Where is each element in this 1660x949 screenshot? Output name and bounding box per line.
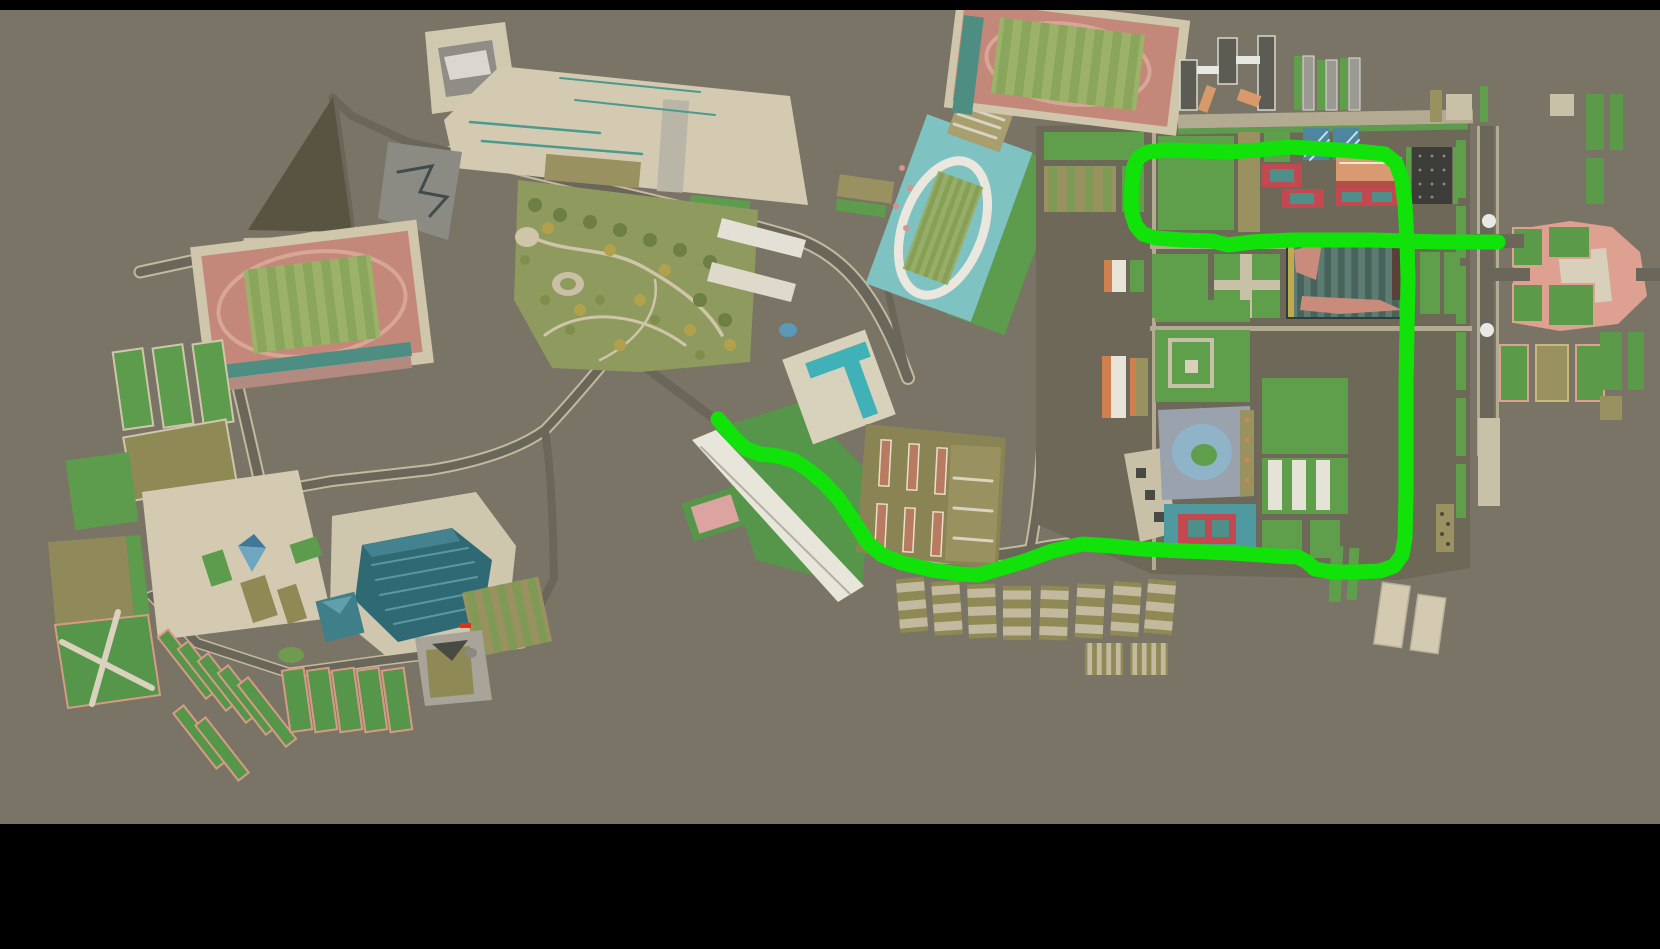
parked-cars bbox=[1440, 512, 1444, 516]
sidewalk bbox=[1496, 126, 1499, 456]
lawn-strip bbox=[1294, 56, 1302, 110]
plot-group bbox=[1087, 643, 1092, 675]
lawn-strip bbox=[1130, 260, 1144, 292]
park-trees bbox=[540, 295, 550, 305]
plot-green bbox=[1500, 345, 1528, 401]
court-teal bbox=[1188, 520, 1205, 537]
dorm-link bbox=[1197, 66, 1219, 74]
park-trees bbox=[604, 244, 616, 256]
building-white-slab bbox=[1268, 460, 1282, 510]
building-orange-edge bbox=[1336, 181, 1402, 187]
greenhouse bbox=[931, 512, 943, 556]
lawn-square bbox=[65, 452, 138, 530]
dorm-building bbox=[1258, 36, 1275, 110]
sidewalk bbox=[1477, 126, 1480, 456]
building-khaki bbox=[1430, 90, 1442, 122]
plot-green bbox=[1576, 345, 1604, 401]
lawn-strip bbox=[1586, 158, 1604, 204]
campus-map-canvas[interactable] bbox=[0, 0, 1660, 949]
lawn-strip bbox=[1456, 398, 1466, 456]
lawn-strip bbox=[1480, 86, 1488, 122]
lawn-strip bbox=[1456, 266, 1466, 324]
road-into-fan bbox=[1494, 268, 1530, 281]
park-trees bbox=[542, 222, 554, 234]
roundabout bbox=[1482, 214, 1496, 228]
letterbox-bottom bbox=[0, 824, 1660, 949]
plot-column bbox=[1003, 609, 1031, 618]
park-trees bbox=[574, 304, 586, 316]
plot-column bbox=[968, 624, 996, 634]
path-band-khaki bbox=[1240, 410, 1254, 496]
letterbox-top bbox=[0, 0, 1660, 10]
park-trees bbox=[718, 313, 732, 327]
plot-column bbox=[1076, 606, 1104, 616]
parking-dots bbox=[1443, 183, 1446, 186]
sports-markers bbox=[893, 203, 899, 209]
lawn bbox=[1262, 378, 1348, 454]
park-trees bbox=[684, 324, 696, 336]
tree-dots bbox=[1245, 458, 1250, 463]
greenhouse bbox=[879, 440, 891, 486]
plot-column bbox=[967, 588, 995, 598]
parked-cars bbox=[1446, 522, 1450, 526]
plot-column bbox=[1003, 591, 1031, 600]
parking-dots bbox=[1419, 169, 1422, 172]
plot-column bbox=[968, 606, 996, 616]
building-beige bbox=[1446, 94, 1472, 120]
plot-group bbox=[1097, 643, 1102, 675]
dorm-building-light bbox=[1326, 60, 1337, 110]
tree-dots bbox=[1245, 438, 1250, 443]
road-into-fan bbox=[1636, 268, 1660, 281]
lawn bbox=[1044, 132, 1144, 160]
lawn-quad bbox=[1513, 284, 1543, 322]
building-beige bbox=[1550, 94, 1574, 116]
dorm-building-light bbox=[1349, 58, 1360, 110]
gatehouse bbox=[1136, 468, 1146, 478]
park-trees bbox=[634, 294, 646, 306]
park-trees bbox=[565, 325, 575, 335]
parked-cars bbox=[1440, 532, 1444, 536]
court-teal bbox=[1212, 520, 1229, 537]
court-teal bbox=[1270, 169, 1294, 182]
parking-dots bbox=[1419, 196, 1422, 199]
lawn-strip bbox=[1456, 140, 1466, 198]
dorm-link bbox=[1236, 56, 1260, 64]
park-trees bbox=[614, 339, 626, 351]
lawn-strip bbox=[1628, 332, 1644, 390]
pond-feature bbox=[779, 323, 797, 337]
sports-markers bbox=[907, 185, 913, 191]
park-trees bbox=[695, 350, 705, 360]
plot-column bbox=[1040, 608, 1068, 618]
lawn bbox=[1155, 300, 1250, 322]
dorm-building bbox=[1218, 38, 1237, 84]
roundabout-green bbox=[278, 647, 304, 663]
parking-dots bbox=[1419, 155, 1422, 158]
red-vehicle bbox=[460, 623, 471, 628]
lawn-strip bbox=[1456, 464, 1466, 518]
walk-column bbox=[1478, 418, 1500, 506]
parking-dots bbox=[1443, 169, 1446, 172]
gatehouse bbox=[1154, 512, 1164, 522]
allotments bbox=[1085, 166, 1094, 212]
parking-dots bbox=[1431, 196, 1434, 199]
parking-khaki bbox=[1436, 504, 1454, 552]
field-crossed bbox=[55, 615, 160, 708]
greenhouse bbox=[935, 448, 947, 494]
field-edge-yellow bbox=[1287, 238, 1294, 318]
allotments bbox=[1049, 166, 1058, 212]
park-trees bbox=[553, 208, 567, 222]
farm-building bbox=[945, 445, 1001, 563]
court-teal bbox=[1342, 192, 1362, 202]
park-trees bbox=[673, 243, 687, 257]
park-trees bbox=[650, 315, 660, 325]
dorm-building bbox=[1180, 60, 1197, 110]
park-trees bbox=[693, 293, 707, 307]
building-orange-stripe bbox=[1104, 260, 1112, 292]
roundabout bbox=[1480, 323, 1494, 337]
parked-cars bbox=[1446, 542, 1450, 546]
park-trees bbox=[613, 223, 627, 237]
lawn-strip bbox=[1317, 60, 1325, 110]
allotments bbox=[1067, 166, 1076, 212]
greenhouse bbox=[903, 508, 915, 552]
plot-column bbox=[1039, 626, 1067, 636]
greenhouse bbox=[907, 444, 919, 490]
building-white-slab bbox=[1292, 460, 1306, 510]
parking-dots bbox=[1443, 155, 1446, 158]
pond-island bbox=[1191, 444, 1217, 466]
lawn-strip bbox=[1456, 206, 1466, 258]
lawn-strip bbox=[1340, 58, 1348, 110]
building-white-slab bbox=[1316, 460, 1330, 510]
sports-markers bbox=[899, 165, 905, 171]
parking-dots bbox=[1431, 155, 1434, 158]
lawn-quad bbox=[1548, 226, 1590, 258]
plot-group bbox=[1116, 643, 1121, 675]
plot-group bbox=[1142, 643, 1147, 675]
plot-column bbox=[1077, 588, 1105, 598]
path-cross bbox=[1214, 280, 1280, 290]
field-khaki-large bbox=[48, 536, 134, 630]
plot-khaki bbox=[1600, 396, 1622, 420]
parking-dots bbox=[1419, 183, 1422, 186]
park-amphitheater-core bbox=[560, 278, 576, 290]
plot-group bbox=[1132, 643, 1137, 675]
lawn-strip bbox=[1610, 94, 1623, 150]
park-trees bbox=[520, 255, 530, 265]
park-trees bbox=[595, 295, 605, 305]
building-orange-stripe bbox=[1130, 358, 1136, 416]
plot-column bbox=[1075, 624, 1103, 634]
court-teal bbox=[1290, 193, 1314, 204]
tree-dots bbox=[1245, 418, 1250, 423]
dorm-building-light bbox=[1303, 56, 1314, 110]
small-building bbox=[1185, 360, 1198, 373]
plot-group bbox=[1161, 643, 1166, 675]
parking-dots bbox=[1431, 183, 1434, 186]
building-orange-stripe bbox=[1102, 356, 1111, 418]
allotments bbox=[1103, 166, 1112, 212]
plot-column bbox=[1003, 627, 1031, 636]
park-trees bbox=[724, 339, 736, 351]
park-trees bbox=[583, 215, 597, 229]
parking-dots bbox=[1431, 169, 1434, 172]
court-teal bbox=[1372, 192, 1392, 202]
lawn-strip bbox=[1456, 332, 1466, 390]
plot-group bbox=[1151, 643, 1156, 675]
lawn-strip bbox=[1586, 94, 1604, 150]
lawn-strip bbox=[1600, 332, 1622, 390]
plot-group bbox=[1106, 643, 1111, 675]
sports-markers bbox=[903, 225, 909, 231]
gatehouse bbox=[1145, 490, 1155, 500]
tree-dots bbox=[1245, 478, 1250, 483]
lawn-strip bbox=[1420, 252, 1440, 314]
dome-building bbox=[465, 648, 477, 658]
park-trees bbox=[643, 233, 657, 247]
park-trees bbox=[659, 264, 671, 276]
plot-khaki bbox=[1536, 345, 1568, 401]
plot-column bbox=[1040, 590, 1068, 600]
lawn-quad bbox=[1548, 284, 1594, 326]
road-vertical bbox=[1480, 126, 1494, 456]
screenshot-root bbox=[0, 0, 1660, 949]
park-trees bbox=[528, 198, 542, 212]
park-terrace bbox=[515, 227, 539, 247]
